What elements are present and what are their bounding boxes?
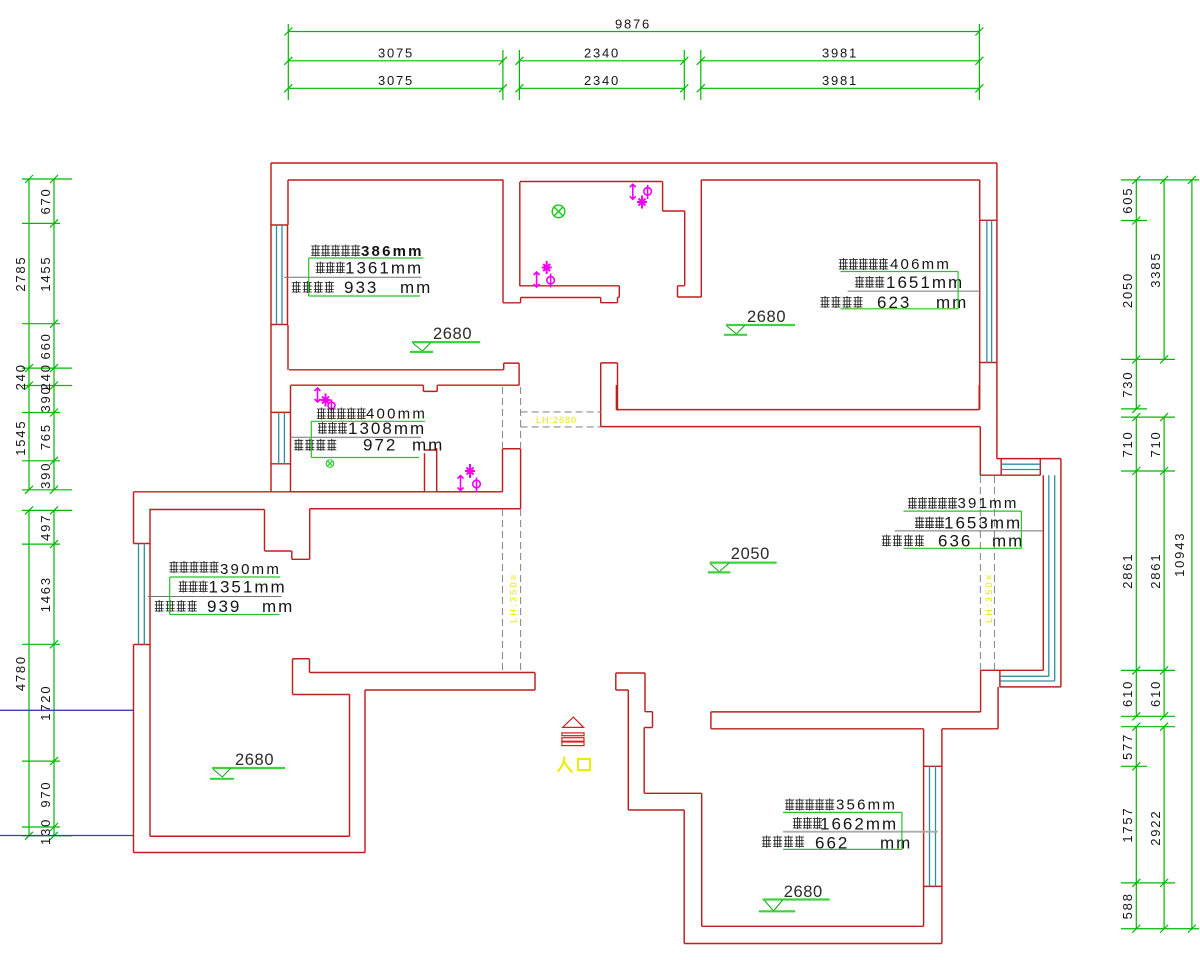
svg-text:497: 497 [38, 514, 53, 541]
svg-text:670: 670 [38, 187, 53, 214]
svg-text:356mm: 356mm [836, 797, 897, 814]
svg-text:2680: 2680 [784, 883, 823, 901]
svg-text:710: 710 [1120, 430, 1135, 457]
svg-text:1720: 1720 [38, 685, 53, 721]
svg-text:240: 240 [13, 363, 28, 390]
svg-text:972: 972 [363, 436, 397, 455]
svg-text:2861: 2861 [1120, 553, 1135, 589]
svg-text:1351mm: 1351mm [209, 578, 287, 597]
svg-text:1463: 1463 [38, 576, 53, 612]
svg-text:390mm: 390mm [220, 561, 281, 578]
svg-text:2922: 2922 [1148, 810, 1163, 846]
svg-text:LH:350≡: LH:350≡ [509, 573, 519, 623]
svg-text:1651mm: 1651mm [886, 273, 964, 292]
svg-text:605: 605 [1120, 187, 1135, 214]
svg-text:mm: mm [412, 436, 444, 455]
svg-text:9876: 9876 [615, 17, 651, 32]
svg-text:2680: 2680 [433, 325, 472, 343]
svg-text:mm: mm [992, 532, 1024, 551]
svg-text:1653mm: 1653mm [944, 514, 1022, 533]
svg-text:1455: 1455 [38, 256, 53, 292]
svg-text:610: 610 [1120, 680, 1135, 707]
svg-text:2680: 2680 [747, 308, 786, 326]
svg-text:406mm: 406mm [890, 256, 951, 273]
svg-text:390: 390 [38, 385, 53, 412]
svg-text:2861: 2861 [1148, 553, 1163, 589]
svg-text:2680: 2680 [235, 751, 274, 769]
svg-text:1757: 1757 [1120, 807, 1135, 843]
svg-text:3385: 3385 [1148, 252, 1163, 288]
svg-text:391mm: 391mm [958, 495, 1019, 512]
svg-text:2050: 2050 [731, 545, 770, 563]
svg-text:3075: 3075 [378, 73, 414, 88]
svg-text:1545: 1545 [13, 420, 28, 456]
svg-text:660: 660 [38, 332, 53, 359]
svg-text:2340: 2340 [584, 73, 620, 88]
svg-text:939: 939 [207, 597, 241, 616]
svg-text:933: 933 [344, 278, 378, 297]
svg-text:LH:2680: LH:2680 [536, 415, 577, 425]
svg-text:765: 765 [38, 423, 53, 450]
svg-text:577: 577 [1120, 733, 1135, 760]
svg-text:390: 390 [38, 462, 53, 489]
svg-text:588: 588 [1120, 892, 1135, 919]
svg-text:610: 610 [1148, 680, 1163, 707]
svg-text:970: 970 [38, 781, 53, 808]
svg-text:1361mm: 1361mm [345, 259, 423, 278]
svg-text:mm: mm [262, 597, 294, 616]
svg-text:710: 710 [1148, 430, 1163, 457]
svg-text:130: 130 [38, 818, 53, 845]
svg-text:3981: 3981 [822, 73, 858, 88]
svg-text:1662mm: 1662mm [820, 814, 898, 833]
svg-text:730: 730 [1120, 371, 1135, 398]
svg-text:2340: 2340 [584, 46, 620, 61]
svg-text:3981: 3981 [822, 46, 858, 61]
svg-text:4780: 4780 [13, 655, 28, 691]
svg-text:2050: 2050 [1120, 272, 1135, 308]
svg-text:10943: 10943 [1172, 532, 1187, 577]
svg-text:636: 636 [938, 532, 972, 551]
svg-text:3075: 3075 [378, 46, 414, 61]
svg-text:mm: mm [400, 278, 432, 297]
svg-text:2785: 2785 [13, 256, 28, 292]
svg-text:LH:350≡: LH:350≡ [984, 573, 994, 623]
